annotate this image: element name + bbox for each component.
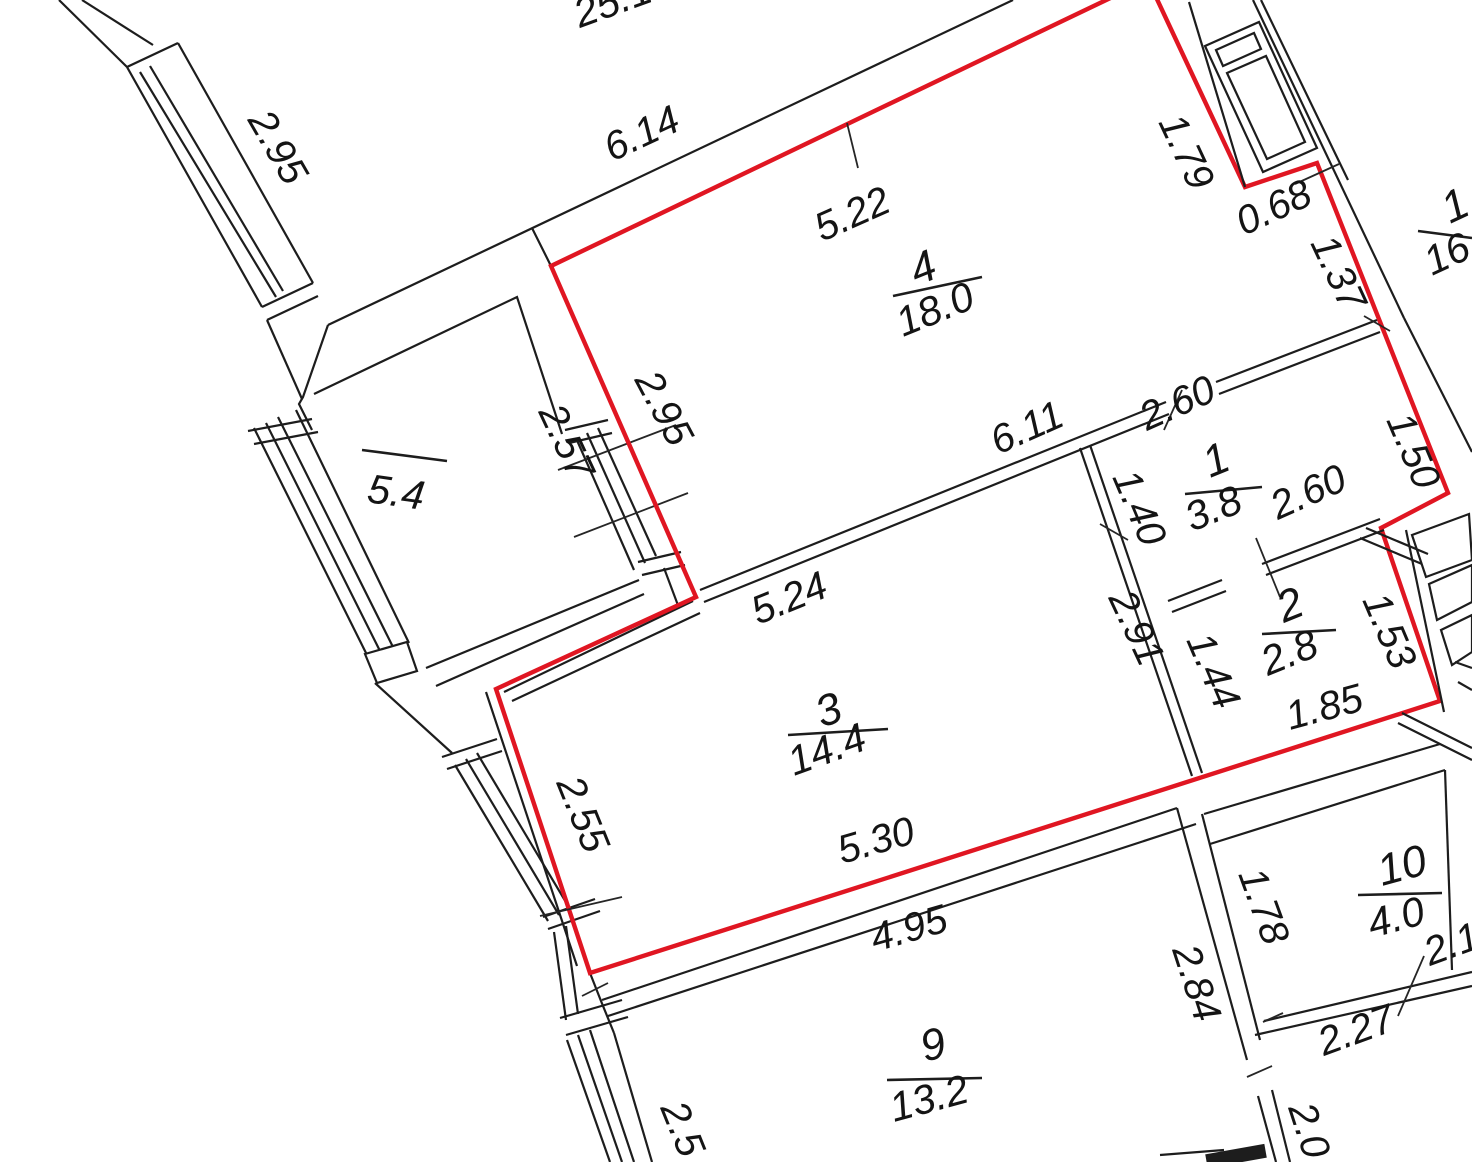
svg-text:5.4: 5.4 xyxy=(365,465,428,518)
